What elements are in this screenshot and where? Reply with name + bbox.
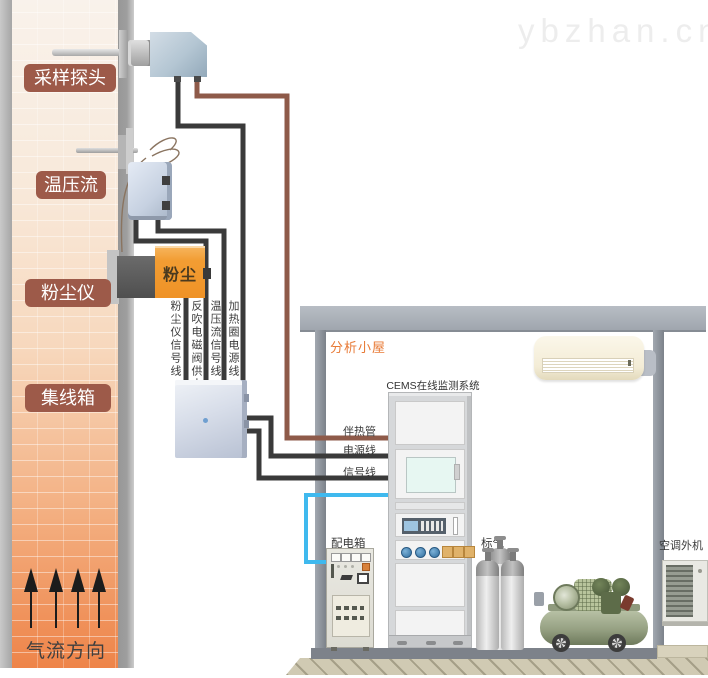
badge-dust-meter: 粉尘仪 [25,279,111,307]
controller-bezel [402,518,446,534]
tpf-port [162,201,170,210]
cable-tpf-signal [158,218,224,390]
signal-line-label: 信号线 [343,464,376,480]
ac-outdoor-grille [666,565,693,617]
breaker-window [361,553,371,562]
ac-outdoor-unit [662,560,708,622]
shed-title: 分析小屋 [330,337,386,356]
gauge-knob [415,547,426,558]
ac-indoor-vent [542,358,634,373]
cabinet-control-panel [395,513,465,537]
dust-meter-mount [117,256,158,298]
ac-indoor-unit [534,336,644,380]
pitot-flange [118,135,126,169]
dust-meter-text: 粉尘 [163,261,197,285]
sampling-probe-coupling [128,40,152,66]
cabinet-blank-panel [395,563,465,607]
junction-box-handle [203,418,208,423]
dust-meter-connector [203,268,211,279]
dust-meter-unit: 粉尘 [155,246,205,298]
junction-box [175,380,247,458]
cabinet-blank-panel [395,401,465,445]
sampling-probe-unit [150,32,207,77]
cems-installation-diagram: ybzhan.cn 采样探头 温压流 粉尘仪 集线箱 气流方向 粉尘仪信号线 反… [0,0,708,678]
main-switch [340,575,353,580]
badge-temp-pressure-flow: 温压流 [36,171,106,199]
probe-connector [194,76,201,82]
badge-sampling-probe: 采样探头 [24,64,116,92]
controller-keypad [421,521,443,531]
cems-cabinet [388,392,472,648]
indicator-lamp [344,565,347,568]
cabinet-divider [395,502,465,510]
vent-panel [332,595,370,637]
gauge-knob [429,547,440,558]
panel-meter [357,573,369,584]
cabinet-gauge-panel [395,540,465,560]
cable-blowback-power [136,218,206,390]
box-foot [331,647,337,651]
breaker-window [331,553,341,562]
indicator-lamp [337,565,340,568]
compressor-wheel [608,634,626,652]
gas-cylinder [501,560,524,650]
compressor-motor [553,584,580,611]
cems-system-label: CEMS在线监测系统 [378,378,488,393]
power-line-label: 电源线 [343,442,376,458]
badge-junction-box: 集线箱 [25,384,111,412]
gauge-knob [401,547,412,558]
cabinet-screen [406,457,456,493]
vent-row [336,616,364,620]
thermometer [453,517,458,535]
controller-screen [404,521,418,531]
vent-row [336,606,364,610]
cabinet-blank-panel [395,610,465,636]
filter-block [453,546,464,558]
compressor-handle [534,592,544,606]
ac-outdoor-bolt [698,569,702,573]
junction-box-hinge [244,420,249,428]
probe-connector [174,76,181,82]
junction-box-hinge [244,394,249,402]
ac-outdoor-bracket [662,622,708,626]
cabinet-slot [454,464,460,480]
tpf-port [162,176,170,185]
ac-indoor-indicator [628,360,631,366]
sampling-probe-flange [119,30,128,78]
compressor-wheel [552,634,570,652]
cabinet-display-panel [395,449,465,499]
indicator-orange [362,563,370,571]
cabinet-foot [453,641,463,645]
breaker-window [351,553,361,562]
cabinet-foot [426,641,436,645]
distribution-box [326,548,374,648]
filter-block [464,546,475,558]
din-rail-slot [331,564,334,578]
gas-cylinder [476,560,499,650]
heat-trace-label: 伴热管 [343,423,376,439]
tpf-sensor-unit [128,162,172,220]
cabinet-foot [397,641,407,645]
breaker-window [341,553,351,562]
indicator-lamp [351,565,354,568]
filter-block [442,546,453,558]
box-foot [363,647,369,651]
compressor-block [601,592,621,614]
ac-outdoor-label: 空调外机 [659,537,703,553]
